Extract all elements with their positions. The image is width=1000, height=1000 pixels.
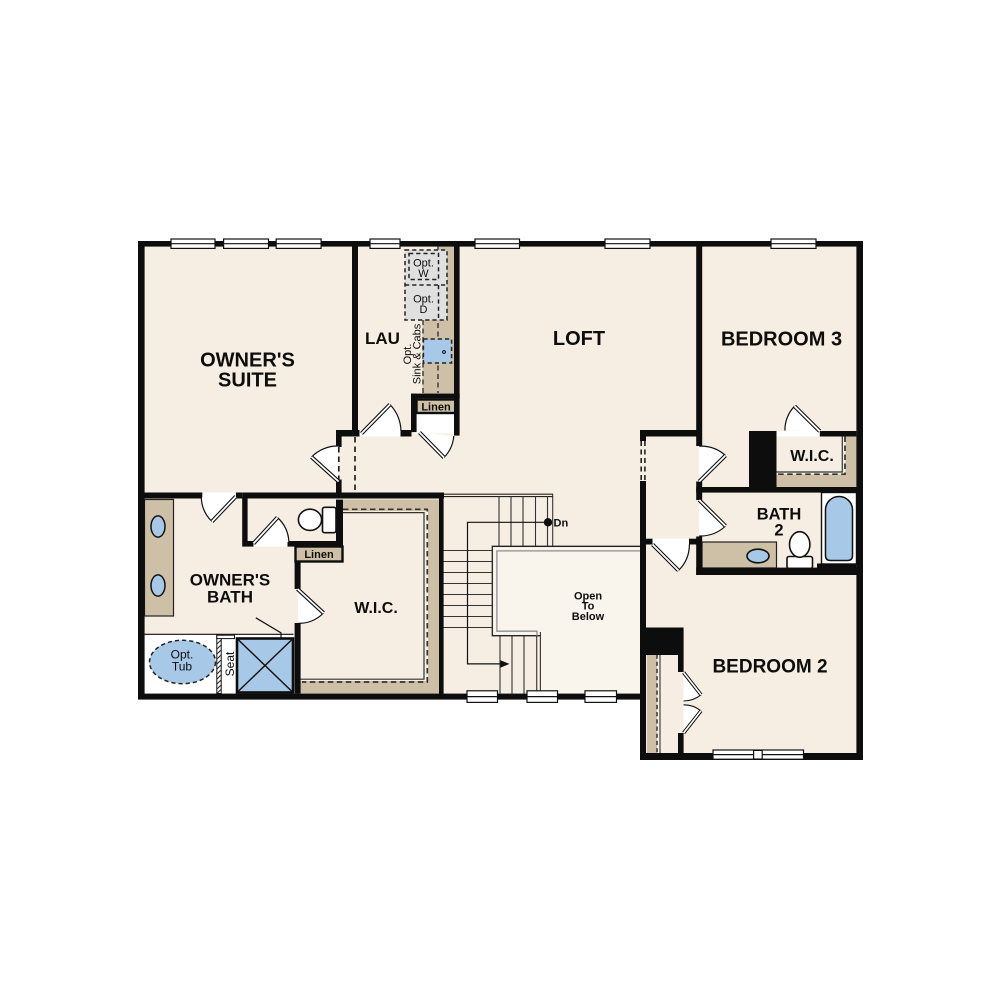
svg-text:BEDROOM 2: BEDROOM 2 <box>712 656 827 677</box>
svg-text:Linen: Linen <box>421 402 451 414</box>
svg-text:LAU: LAU <box>365 329 400 348</box>
svg-text:Tub: Tub <box>172 659 193 673</box>
svg-text:Linen: Linen <box>304 549 334 561</box>
svg-text:Below: Below <box>572 611 605 623</box>
svg-text:2: 2 <box>774 521 783 539</box>
svg-text:BATH: BATH <box>207 587 253 606</box>
svg-text:BEDROOM 3: BEDROOM 3 <box>721 329 842 351</box>
svg-text:W.I.C.: W.I.C. <box>354 600 398 617</box>
svg-text:SUITE: SUITE <box>218 370 277 392</box>
svg-text:W: W <box>418 268 429 280</box>
svg-text:D: D <box>420 304 428 316</box>
svg-text:Sink & Cabs: Sink & Cabs <box>412 323 424 384</box>
svg-text:Dn: Dn <box>554 517 569 529</box>
svg-text:OWNER'S: OWNER'S <box>200 350 295 372</box>
svg-text:LOFT: LOFT <box>553 328 605 350</box>
svg-text:Seat: Seat <box>223 651 237 676</box>
svg-text:W.I.C.: W.I.C. <box>790 448 834 465</box>
